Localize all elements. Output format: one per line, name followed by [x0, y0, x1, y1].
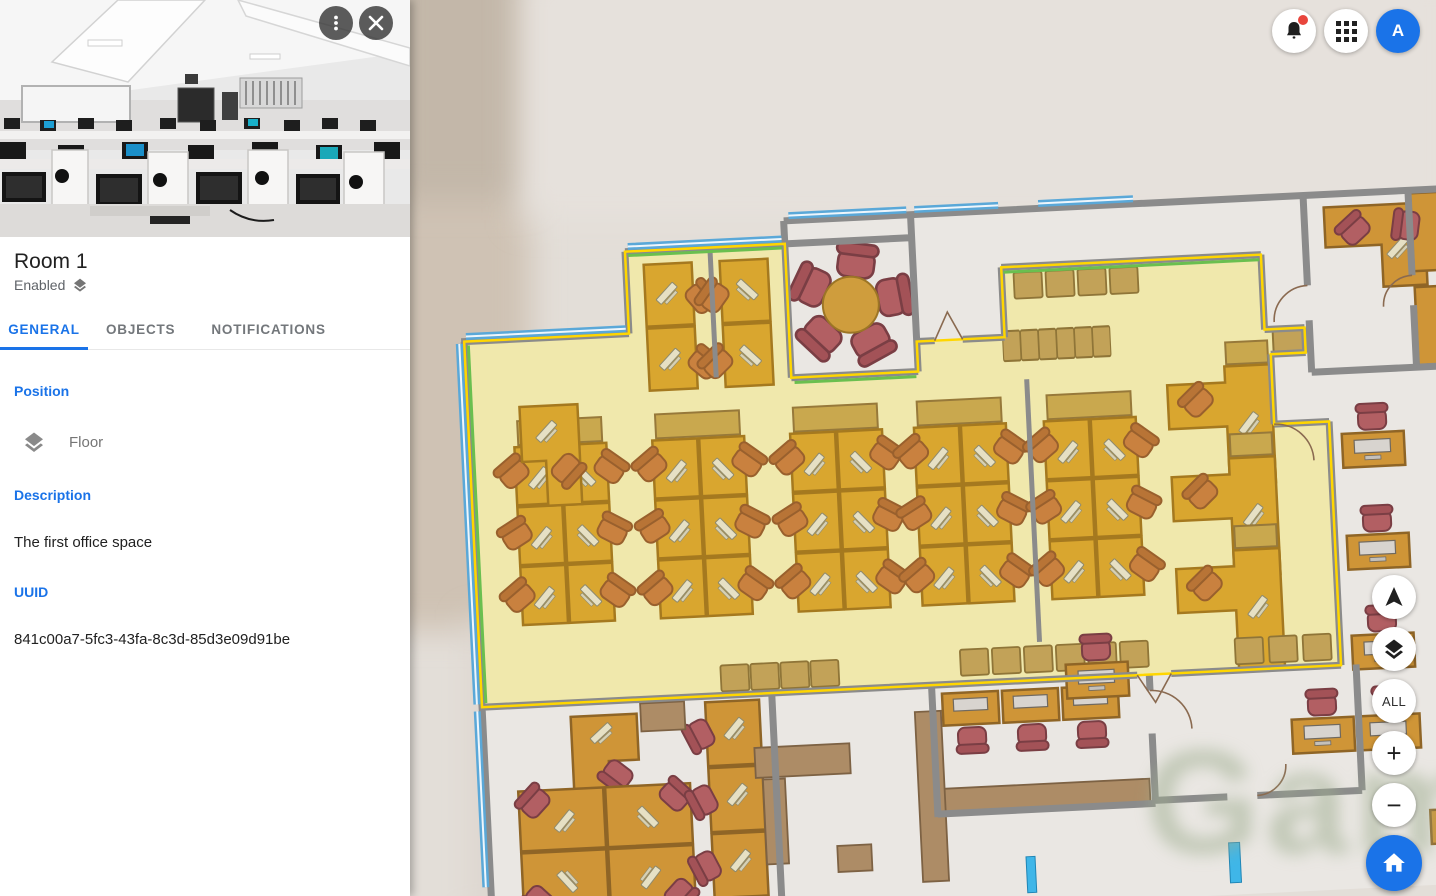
description-section-header: Description	[14, 487, 396, 503]
zoom-in-button[interactable]: +	[1372, 731, 1416, 775]
floor-plan-canvas	[410, 0, 1436, 896]
minus-icon: −	[1386, 792, 1401, 818]
map-controls: ALL + −	[1366, 575, 1422, 891]
status-text: Enabled	[14, 277, 65, 293]
kebab-menu-icon	[327, 14, 345, 32]
compass-button[interactable]	[1372, 575, 1416, 619]
layers-icon	[1382, 637, 1406, 661]
all-label: ALL	[1382, 694, 1406, 709]
zoom-out-button[interactable]: −	[1372, 783, 1416, 827]
position-floor-row[interactable]: Floor	[14, 430, 396, 454]
smart-building-app: Game A	[0, 0, 1436, 896]
panel-tabs: GENERAL OBJECTS NOTIFICATIONS	[0, 309, 410, 350]
page-title: Room 1	[14, 250, 396, 274]
floor-plan-map[interactable]: Game A	[410, 0, 1436, 896]
home-icon	[1381, 850, 1407, 876]
compass-arrow-icon	[1382, 585, 1406, 609]
room-details-panel: Room 1 Enabled GENERAL OBJECTS NOTIFICAT…	[0, 0, 410, 896]
tab-objects[interactable]: OBJECTS	[88, 309, 193, 349]
apps-grid-button[interactable]	[1324, 9, 1368, 53]
more-options-button[interactable]	[319, 6, 353, 40]
uuid-value: 841c00a7-5fc3-43fa-8c3d-85d3e09d91be	[14, 631, 396, 648]
topbar: A	[1272, 9, 1420, 53]
desk-cluster	[512, 773, 703, 896]
apps-grid-icon	[1336, 21, 1357, 42]
show-all-button[interactable]: ALL	[1372, 679, 1416, 723]
notifications-button[interactable]	[1272, 9, 1316, 53]
account-avatar[interactable]: A	[1376, 9, 1420, 53]
tab-notifications[interactable]: NOTIFICATIONS	[193, 309, 343, 349]
tab-general[interactable]: GENERAL	[0, 309, 88, 349]
home-button[interactable]	[1366, 835, 1422, 891]
layers-icon	[22, 430, 46, 454]
position-section-header: Position	[14, 383, 396, 399]
map-layers-button[interactable]	[1372, 627, 1416, 671]
room-photo-image	[0, 0, 410, 237]
avatar-letter: A	[1392, 21, 1404, 41]
layers-badge-icon[interactable]	[72, 277, 88, 293]
uuid-section-header: UUID	[14, 584, 396, 600]
position-value: Floor	[69, 434, 103, 451]
plus-icon: +	[1386, 740, 1401, 766]
notification-dot	[1298, 15, 1308, 25]
close-panel-button[interactable]	[359, 6, 393, 40]
close-icon	[367, 14, 385, 32]
room-photo	[0, 0, 410, 237]
description-value: The first office space	[14, 534, 396, 551]
